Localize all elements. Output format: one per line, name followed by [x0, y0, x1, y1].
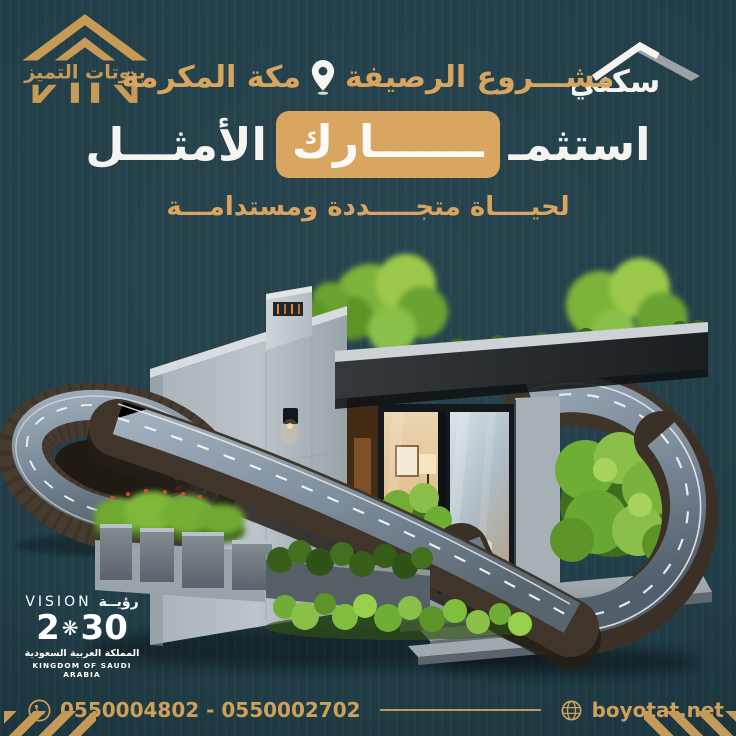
- vision-country-ar: المملكة العربية السعودية: [14, 648, 150, 659]
- globe-icon: [560, 699, 583, 722]
- footer-divider-line: [380, 709, 541, 711]
- vision-country-en: KINGDOM OF SAUDI ARABIA: [14, 661, 150, 679]
- footer-bar: 0550004802 - 0550002702 boyotat.net: [0, 698, 736, 722]
- vision-year: 2 ❋ 30: [14, 611, 150, 645]
- vision-year-prefix: 2: [36, 611, 60, 645]
- saudi-emblem-icon: ❋: [62, 618, 79, 638]
- corner-stripes-left: [4, 711, 96, 736]
- vision-year-suffix: 30: [81, 611, 128, 645]
- wall-lamp: [281, 408, 299, 445]
- corner-stripes-right: [644, 711, 736, 736]
- phone-numbers[interactable]: 0550004802 - 0550002702: [60, 698, 361, 722]
- vision-2030-logo: VISION رؤيــة 2 ❋ 30 المملكة العربية الس…: [14, 594, 150, 679]
- poster-root: بيوتات التميز سكني مشـــروع الرصيفة مكة …: [0, 0, 736, 736]
